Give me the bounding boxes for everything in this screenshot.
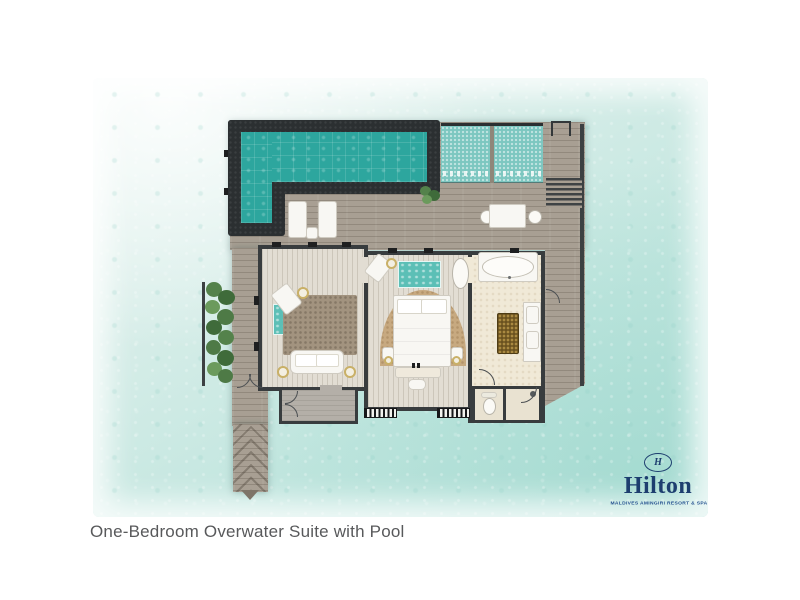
window-mark <box>342 242 351 247</box>
sofa-cushion <box>316 354 339 367</box>
corner-plant <box>418 184 442 206</box>
sofa-cushion <box>295 354 318 367</box>
pool-tick <box>224 150 228 157</box>
glass-floor-panel <box>398 261 441 288</box>
round-side-table <box>344 366 356 378</box>
greenery <box>204 282 238 384</box>
round-side-table <box>386 258 397 269</box>
slipper <box>412 363 415 368</box>
bedside-lamp <box>452 356 461 365</box>
sofa <box>290 350 344 374</box>
toilet <box>483 398 496 415</box>
window-mark <box>388 248 397 253</box>
plan-caption: One-Bedroom Overwater Suite with Pool <box>90 522 404 542</box>
floor-plan-page: H Hilton MALDIVES AMINGIRI RESORT & SPA … <box>0 0 800 600</box>
brand-name: Hilton <box>600 474 716 498</box>
brand-tagline: MALDIVES AMINGIRI RESORT & SPA <box>610 501 705 506</box>
king-bed <box>393 295 451 367</box>
vanity-island <box>497 313 519 354</box>
window-mark <box>254 296 259 305</box>
hilton-monogram-icon: H <box>644 453 672 472</box>
round-side-table <box>297 287 309 299</box>
hilton-logo: H Hilton MALDIVES AMINGIRI RESORT & SPA <box>600 453 716 507</box>
tub-faucet <box>508 276 511 279</box>
window-mark <box>424 248 433 253</box>
swim-ladder <box>551 121 571 136</box>
pool-tick <box>224 188 228 195</box>
round-side-table <box>277 366 289 378</box>
sink <box>526 331 539 349</box>
bridge-tip <box>241 490 259 500</box>
sliding-door-track <box>364 408 397 418</box>
freestanding-basin <box>452 258 469 289</box>
side-deck <box>545 250 585 406</box>
catamaran-nets <box>441 123 543 183</box>
bridge-chevron-left <box>233 424 251 492</box>
net-panel <box>494 126 543 183</box>
pillow <box>421 299 447 314</box>
sink <box>526 306 539 324</box>
foot-bench <box>395 367 441 378</box>
swimming-pool-arm <box>241 132 272 223</box>
slipper <box>417 363 420 368</box>
pillow <box>397 299 423 314</box>
access-bridge <box>233 424 268 492</box>
lounger-side-table <box>306 227 318 239</box>
window-mark <box>510 248 519 253</box>
net-panel <box>441 126 490 183</box>
bridge-chevron-right <box>251 424 269 492</box>
water-access-stairs <box>546 178 582 208</box>
outdoor-dining-table <box>489 204 526 228</box>
deck-edge-rail <box>580 124 584 386</box>
bedside-lamp <box>384 356 393 365</box>
window-mark <box>272 242 281 247</box>
sun-lounger <box>288 201 307 238</box>
hilton-monogram-letter: H <box>654 458 662 468</box>
stool <box>408 379 426 390</box>
window-mark <box>254 342 259 351</box>
sun-lounger <box>318 201 337 238</box>
bathtub <box>482 256 534 278</box>
doorway-living-vestibule <box>320 385 342 391</box>
dining-chair <box>528 210 542 224</box>
window-mark <box>308 242 317 247</box>
duvet <box>394 316 450 366</box>
bathtub-surround <box>478 252 538 282</box>
sliding-door-track <box>437 408 470 418</box>
